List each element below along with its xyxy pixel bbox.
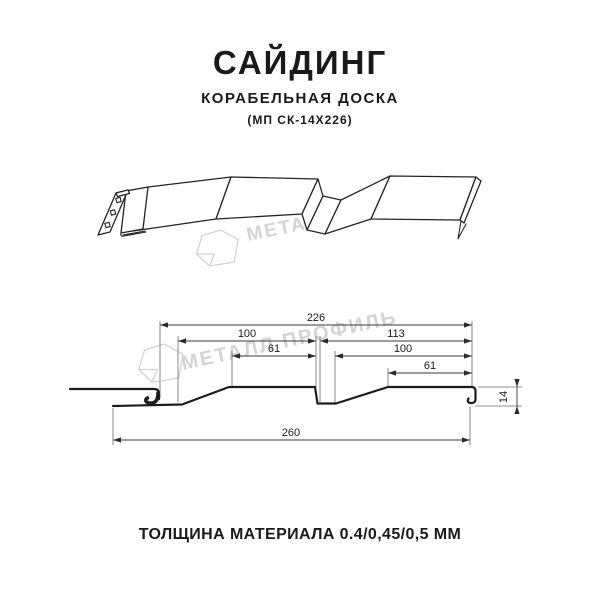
cross-section-drawing: МЕТАЛЛ ПРОФИЛЬ — [55, 290, 545, 455]
page-title: САЙДИНГ — [0, 46, 600, 79]
panel-face-top2 — [371, 176, 476, 220]
iso-view-drawing: МЕТАЛЛ ПРОФИЛЬ — [88, 158, 488, 268]
panel-right-lip — [458, 221, 466, 239]
metall-profil-logo-icon — [197, 230, 239, 266]
nail-hole-icon — [105, 222, 110, 227]
dim-label-left-outer: 100 — [238, 328, 256, 340]
product-model-code: (МП СК-14Х226) — [0, 113, 600, 127]
thickness-caption: ТОЛЩИНА МАТЕРИАЛА 0.4/0,45/0,5 ММ — [0, 526, 600, 544]
dim-label-total: 260 — [282, 427, 300, 439]
header: САЙДИНГ КОРАБЕЛЬНАЯ ДОСКА (МП СК-14Х226) — [0, 46, 600, 127]
dim-label-right-outer: 113 — [387, 328, 405, 340]
nail-hole-icon — [116, 197, 121, 202]
dim-label-height: 14 — [498, 391, 510, 403]
profile-outline — [70, 387, 476, 406]
dim-label-overall: 226 — [307, 312, 325, 324]
dim-label-right-mid: 100 — [394, 343, 412, 355]
product-subtitle: КОРАБЕЛЬНАЯ ДОСКА — [0, 90, 600, 107]
panel-face-board1 — [133, 177, 231, 231]
metall-profil-logo-icon — [139, 344, 183, 382]
product-diagram-page: САЙДИНГ КОРАБЕЛЬНАЯ ДОСКА (МП СК-14Х226)… — [0, 0, 600, 600]
dim-label-left-inner: 61 — [268, 343, 280, 355]
dim-label-right-inner: 61 — [424, 360, 436, 372]
nail-hole-icon — [110, 210, 115, 215]
